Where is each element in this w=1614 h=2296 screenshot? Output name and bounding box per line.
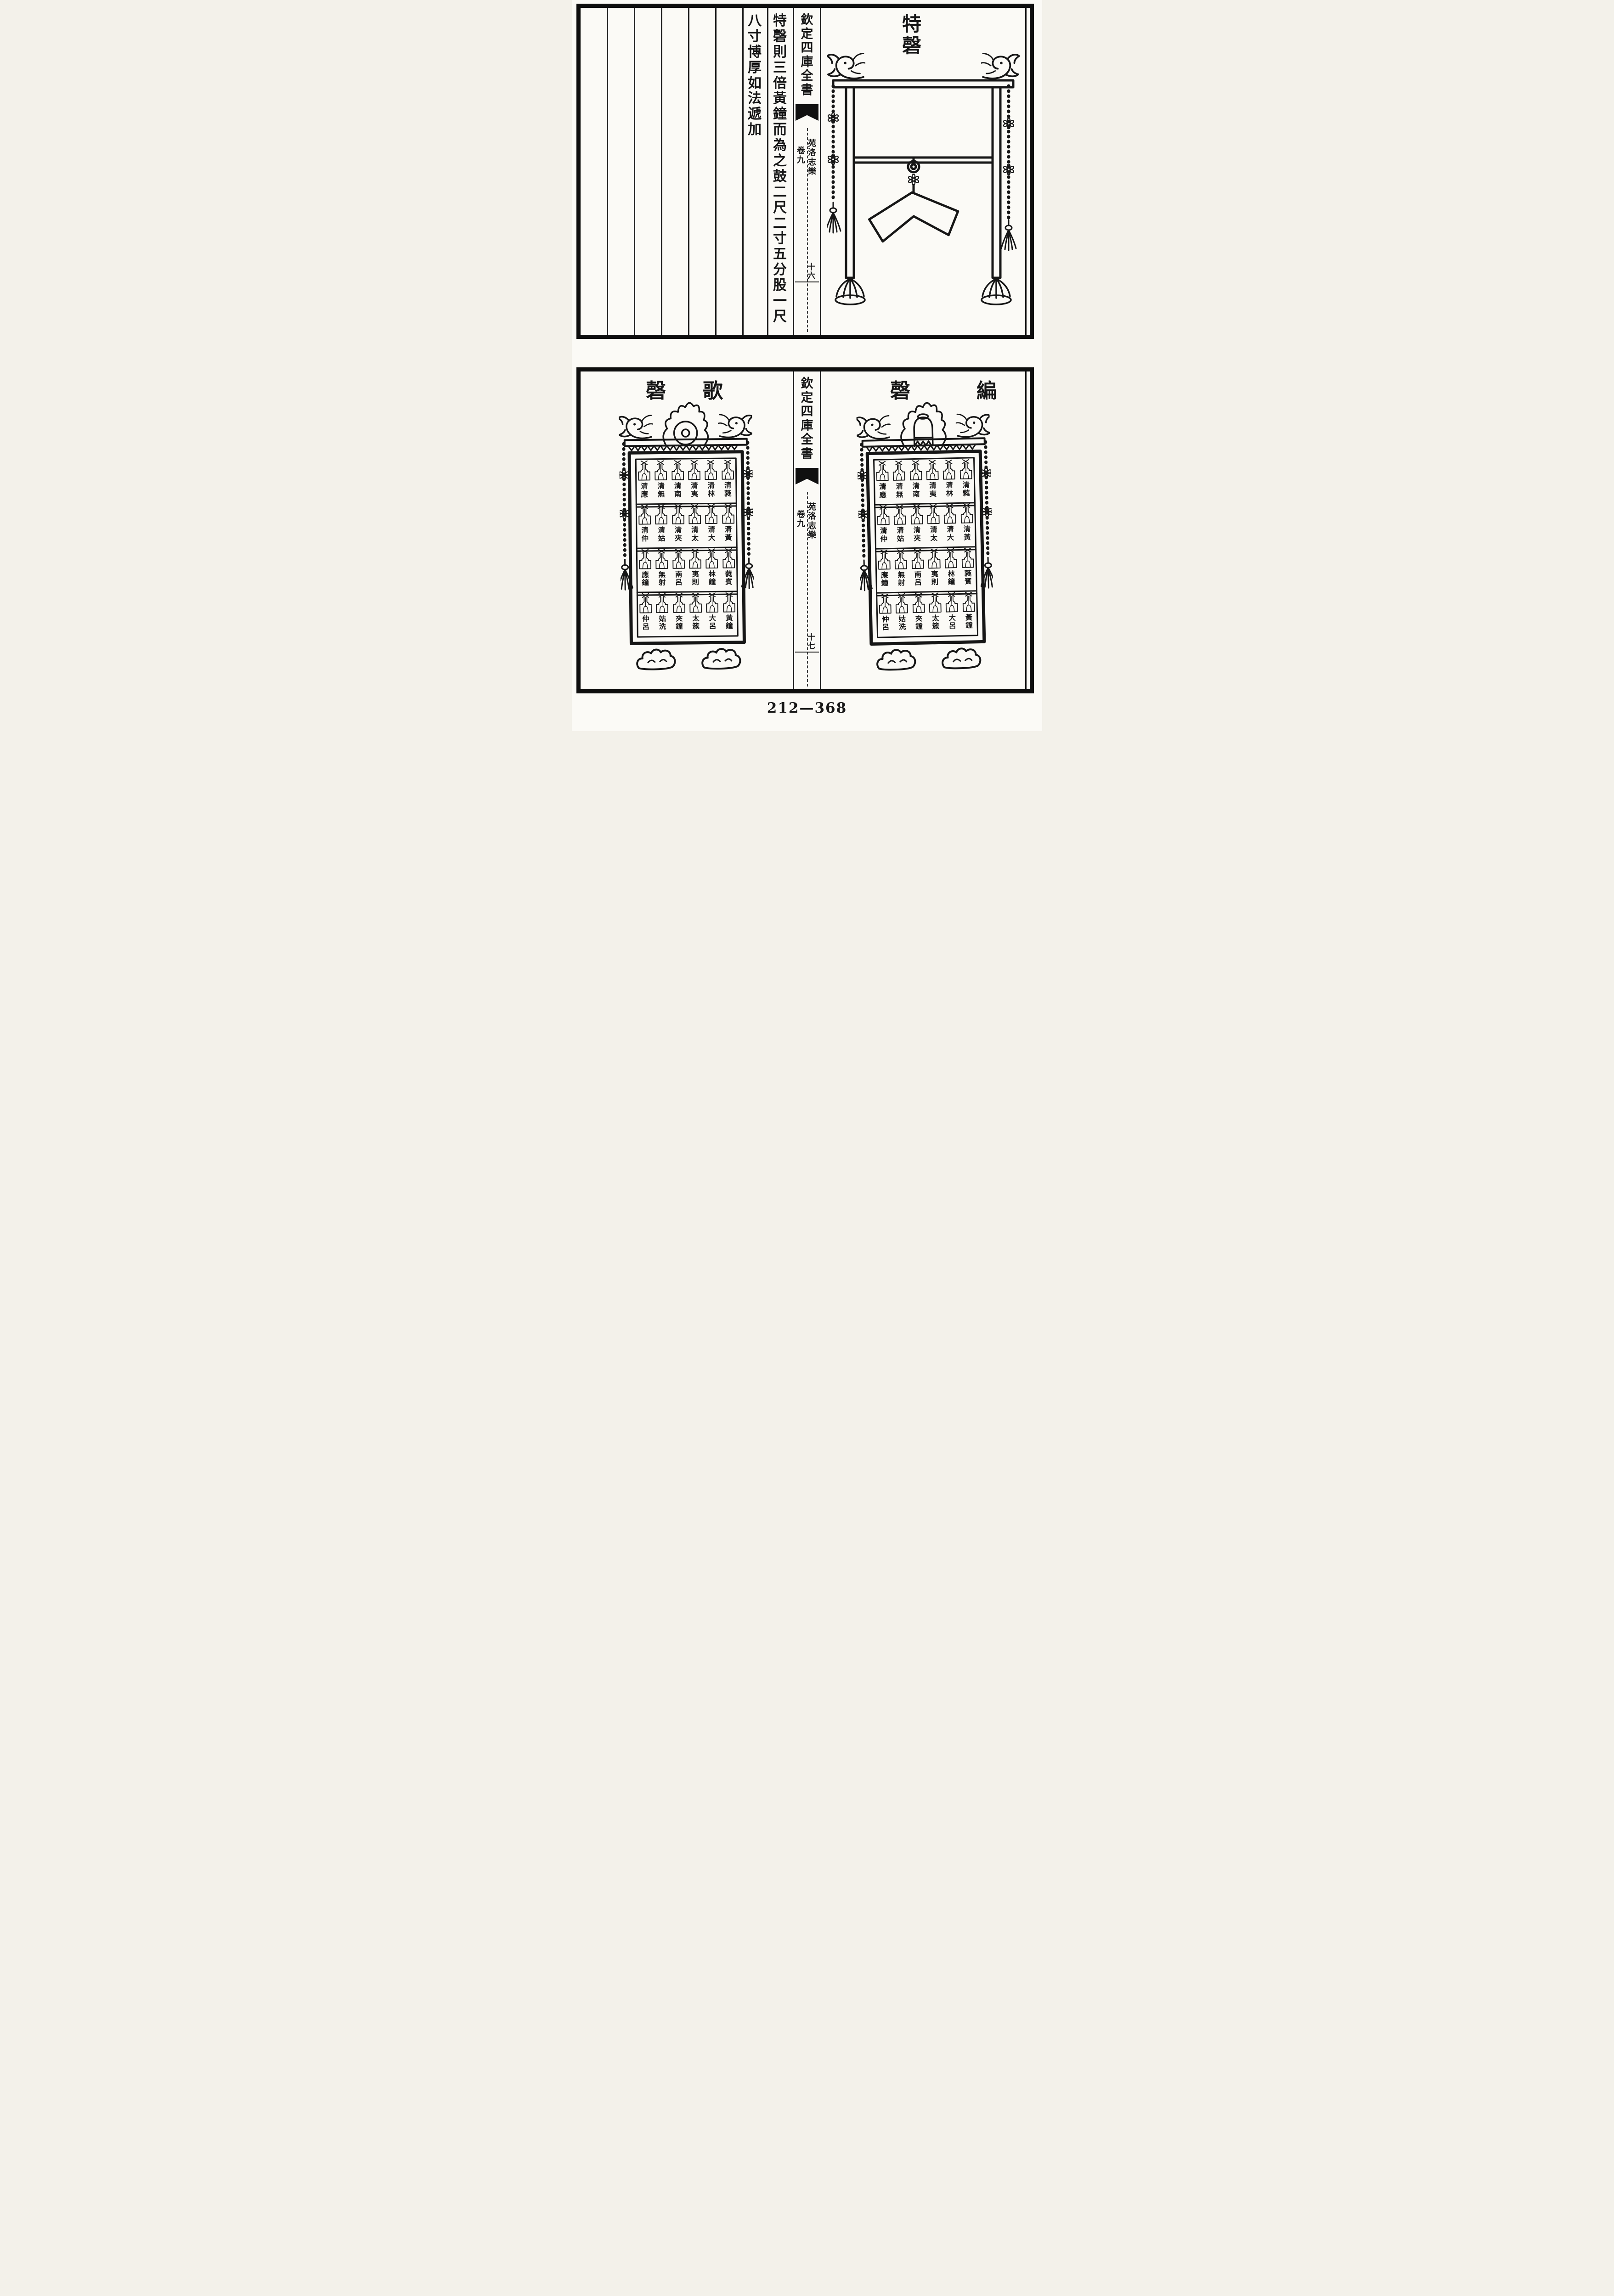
chime-label: 應鐘	[881, 571, 888, 587]
chime: 清應	[874, 461, 892, 505]
chime-label: 蕤賓	[965, 569, 972, 585]
spine-folio: 十六	[807, 263, 815, 281]
catalog-page-number: 212—368	[572, 700, 1042, 716]
chime-label: 太簇	[932, 614, 939, 630]
page-top: 特磬則三倍黃鐘而為之鼓二尺二寸五分股一尺 八寸博厚如法遞加 欽定四庫全書 苑洛志…	[576, 4, 1034, 339]
chime-label: 清大	[947, 526, 954, 542]
chime-label: 應鐘	[642, 571, 649, 587]
cloud-foot-icon	[702, 649, 740, 669]
dragon-head-icon	[981, 53, 1019, 79]
stand-foot-icon	[982, 279, 1011, 304]
stand-foot-icon	[835, 279, 865, 304]
chime-label: 夷則	[692, 570, 699, 586]
chime-stone-icon	[961, 592, 976, 614]
chime-stone-icon	[942, 460, 956, 482]
chime: 夾鐘	[671, 592, 688, 637]
chime-stone-icon	[705, 504, 718, 526]
chime-label: 清夷	[929, 482, 937, 498]
chime-stone-icon	[722, 548, 735, 569]
folio-rule	[795, 652, 819, 653]
chime-stone-icon	[892, 461, 906, 483]
chime-label: 清仲	[880, 527, 887, 543]
chime-stone-icon	[926, 460, 940, 482]
chime-row: 仲呂姑洗夾鐘太簇大呂黃鐘	[637, 592, 738, 637]
chime-label: 清蕤	[963, 481, 970, 497]
chime-stone-icon	[721, 504, 735, 525]
spine-series-title: 欽定四庫全書	[794, 377, 820, 461]
chime: 清仲	[875, 505, 892, 549]
chime-stone-icon	[704, 460, 718, 481]
chime: 清大	[942, 503, 959, 548]
chime-row: 清應清無清南清夷清林清蕤	[636, 459, 736, 505]
chime-stone-icon	[944, 548, 958, 570]
scanned-book-sheet: 特磬則三倍黃鐘而為之鼓二尺二寸五分股一尺 八寸博厚如法遞加 欽定四庫全書 苑洛志…	[572, 0, 1042, 731]
chime-stone-icon	[638, 593, 652, 615]
chime: 仲呂	[637, 593, 654, 637]
spine-book-title: 苑洛志樂	[808, 503, 816, 540]
fishtail-mark	[796, 104, 818, 121]
chime: 清姑	[892, 504, 909, 549]
chime-label: 清黃	[725, 526, 732, 542]
chime-stone-icon	[960, 547, 975, 569]
body-text: 八寸博厚如法遞加	[748, 8, 762, 335]
spine-folio: 十七	[807, 633, 815, 651]
chime: 清黃	[720, 503, 737, 548]
chime-label: 仲呂	[882, 615, 889, 631]
chime: 林鐘	[704, 548, 721, 592]
chime-row: 清仲清姑清夾清太清大清黃	[636, 503, 737, 549]
chime: 姑洗	[654, 592, 671, 637]
bianqing-rack-illustration: 清應清無清南清夷清林清蕤清仲清姑清夾清太清大清黃應鐘無射南呂夷則林鐘蕤賓仲呂姑洗…	[856, 397, 995, 675]
spine-chapter: 卷九	[797, 146, 805, 165]
chime: 清無	[653, 460, 670, 504]
chime: 清南	[669, 460, 686, 504]
chime: 清仲	[636, 504, 653, 549]
chime-label: 大呂	[709, 614, 717, 630]
chime: 姑洗	[893, 592, 911, 637]
chime-label: 清夷	[691, 482, 698, 498]
chime-stone-icon	[672, 593, 686, 614]
chime: 夾鐘	[910, 592, 927, 637]
chime-label: 黃鐘	[726, 614, 733, 630]
chime: 清林	[941, 459, 958, 504]
chime-label: 清蕤	[724, 482, 732, 498]
fishtail-mark	[796, 468, 818, 484]
chime-stone-icon	[671, 504, 685, 526]
chime-label: 清林	[946, 482, 953, 498]
dragon-head-icon	[619, 415, 653, 439]
right-post	[993, 87, 1000, 278]
chime: 太簇	[687, 592, 704, 636]
column-rule	[715, 8, 717, 335]
dragon-head-icon	[718, 414, 753, 438]
chime-stone-icon	[877, 549, 892, 571]
top-beam	[833, 80, 1013, 87]
text-column-2: 八寸博厚如法遞加	[742, 8, 767, 335]
chime-stone-icon	[927, 548, 942, 570]
spine-book-title: 苑洛志樂	[808, 139, 816, 176]
chime-label: 清夾	[914, 526, 921, 542]
dragon-head-icon	[827, 53, 865, 79]
chime-label: 清太	[691, 526, 699, 542]
chime-row: 清仲清姑清夾清太清大清黃	[875, 503, 976, 549]
chime-label: 姑洗	[898, 615, 906, 631]
chime-stone-icon	[688, 504, 701, 526]
chime-stone-icon	[959, 503, 974, 525]
dragon-head-icon	[955, 414, 990, 437]
chime-stone-icon	[894, 549, 908, 571]
chime-stone-icon	[638, 549, 652, 570]
chime-label: 清林	[707, 482, 715, 498]
chime-stone-icon	[688, 592, 702, 614]
chime: 林鐘	[942, 547, 960, 592]
chime-stone-icon	[705, 548, 719, 570]
chime-label: 清仲	[641, 527, 649, 543]
chime-label: 清大	[708, 526, 715, 542]
chime-stone-icon	[911, 593, 926, 615]
chime-stone-icon	[945, 592, 959, 614]
chime-stone-icon	[722, 592, 736, 614]
chime-label: 清夾	[675, 526, 682, 542]
chime: 清蕤	[957, 459, 975, 503]
chime-row: 應鐘無射南呂夷則林鐘蕤賓	[876, 547, 977, 593]
chime: 清黃	[958, 503, 976, 547]
dragon-head-icon	[856, 416, 891, 439]
chime: 南呂	[670, 548, 687, 592]
chime: 應鐘	[876, 549, 893, 593]
chime-label: 林鐘	[709, 570, 716, 586]
tassel-icon	[827, 203, 841, 233]
tassel-icon	[1001, 220, 1016, 250]
chime-stone-icon	[705, 592, 719, 614]
inner-border-line	[1025, 371, 1027, 689]
chime-label: 黃鐘	[965, 614, 973, 630]
chime-stone-icon	[721, 460, 734, 481]
chime: 黃鐘	[960, 591, 977, 636]
chime-stone-icon	[909, 504, 924, 526]
chime-label: 林鐘	[948, 570, 955, 586]
chime-label: 蕤賓	[725, 570, 733, 586]
column-rule	[661, 8, 662, 335]
chime-stone-icon	[655, 549, 669, 570]
geqing-rack-illustration: 清應清無清南清夷清林清蕤清仲清姑清夾清太清大清黃應鐘無射南呂夷則林鐘蕤賓仲呂姑洗…	[619, 397, 755, 674]
crossbar	[854, 158, 993, 163]
chime-label: 仲呂	[642, 615, 649, 631]
chime-stone-icon	[909, 460, 923, 482]
chime-label: 清姑	[897, 527, 904, 543]
text-column-1: 特磬則三倍黃鐘而為之鼓二尺二寸五分股一尺	[767, 8, 793, 335]
chime-stone-icon	[928, 592, 942, 614]
chain-right	[1001, 86, 1016, 250]
column-rule	[607, 8, 608, 335]
chime-grid: 清應清無清南清夷清林清蕤清仲清姑清夾清太清大清黃應鐘無射南呂夷則林鐘蕤賓仲呂姑洗…	[874, 459, 978, 637]
chime-stone-icon	[895, 593, 909, 615]
column-rule	[634, 8, 635, 335]
chime-label: 清太	[930, 526, 937, 542]
flower-rosette-icon	[908, 174, 919, 185]
chime-label: 清無	[658, 482, 665, 498]
chime-label: 夷則	[931, 570, 938, 586]
chime-stone-icon	[910, 549, 925, 571]
chime: 清蕤	[719, 459, 736, 504]
chime-row: 清應清無清南清夷清林清蕤	[874, 459, 975, 505]
chime-row: 仲呂姑洗夾鐘太簇大呂黃鐘	[877, 591, 978, 637]
left-post	[846, 87, 854, 278]
chime: 清太	[686, 504, 703, 548]
chime: 清大	[703, 503, 720, 548]
spine-series-title: 欽定四庫全書	[794, 13, 820, 97]
chime-stone-icon	[893, 505, 907, 527]
chime-stone-icon	[943, 504, 957, 526]
folio-rule	[795, 281, 819, 282]
chime: 清南	[907, 460, 925, 504]
chime: 清無	[891, 460, 908, 505]
chime-grid: 清應清無清南清夷清林清蕤清仲清姑清夾清太清大清黃應鐘無射南呂夷則林鐘蕤賓仲呂姑洗…	[636, 459, 738, 637]
chime-label: 姑洗	[659, 615, 666, 631]
chime-stone-icon	[638, 505, 651, 526]
chime: 無射	[892, 548, 910, 593]
chime-label: 南呂	[914, 571, 922, 587]
cloud-foot-icon	[637, 649, 675, 670]
chime: 清太	[925, 504, 942, 548]
chime-stone-icon	[876, 505, 891, 527]
chime-stone-icon	[672, 549, 685, 570]
body-text: 特磬則三倍黃鐘而為之鼓二尺二寸五分股一尺	[773, 8, 787, 335]
chime: 夷則	[687, 548, 704, 592]
chime-label: 夾鐘	[676, 615, 683, 631]
chime: 黃鐘	[721, 592, 738, 636]
chime-label: 清無	[896, 483, 903, 499]
cloud-foot-icon	[942, 648, 980, 669]
chime-stone-icon	[654, 460, 668, 482]
chime-stone-icon	[637, 461, 651, 482]
chime: 清夷	[924, 459, 942, 504]
chime: 清夷	[686, 460, 703, 504]
chain-left	[827, 86, 841, 233]
chime-label: 清黃	[964, 525, 971, 541]
chime: 太簇	[927, 592, 944, 636]
column-rule	[688, 8, 689, 335]
spine-banxin: 欽定四庫全書 苑洛志樂 卷九 十七	[793, 371, 821, 689]
chime-label: 清應	[641, 483, 648, 499]
chime-label: 夾鐘	[915, 615, 923, 631]
chime: 應鐘	[637, 548, 654, 593]
chime: 清林	[703, 459, 720, 504]
chime: 蕤賓	[720, 547, 737, 592]
spine-chapter: 卷九	[797, 510, 805, 529]
chime-label: 清應	[879, 483, 886, 499]
chime-stone-shape	[868, 189, 960, 242]
chime-label: 南呂	[675, 571, 683, 587]
chime-label: 清南	[913, 482, 920, 498]
chime-stone-icon	[959, 459, 973, 481]
chime-stone-icon	[688, 548, 702, 570]
chime: 蕤賓	[959, 547, 976, 591]
chime-label: 清南	[674, 482, 682, 498]
chime-stone-icon	[655, 505, 668, 526]
cloud-foot-icon	[877, 649, 915, 670]
chime: 無射	[654, 548, 671, 593]
chime-stone-icon	[655, 593, 669, 614]
chime-stone-icon	[671, 460, 684, 482]
chime-label: 清姑	[658, 527, 666, 543]
page-bottom: 磬 歌 磬 編 欽定四庫全書 苑洛志樂 卷九 十七	[576, 367, 1034, 693]
chime-label: 大呂	[948, 614, 956, 630]
chime: 清應	[636, 460, 653, 505]
chime-stone-icon	[878, 593, 892, 615]
chime: 大呂	[704, 592, 721, 636]
chime-label: 無射	[897, 571, 905, 587]
inner-border-line	[1025, 8, 1027, 335]
chime: 仲呂	[877, 593, 894, 637]
chime-stone-icon	[687, 460, 701, 482]
chime: 南呂	[909, 548, 926, 592]
chime: 大呂	[943, 591, 961, 636]
chime-stone-icon	[875, 461, 890, 483]
chime: 清姑	[653, 504, 670, 549]
chime-row: 應鐘無射南呂夷則林鐘蕤賓	[637, 547, 737, 593]
chime: 清夾	[670, 504, 687, 548]
chime-stone-icon	[926, 504, 941, 526]
chime-label: 無射	[659, 571, 666, 587]
spine-banxin: 欽定四庫全書 苑洛志樂 卷九 十六	[793, 8, 821, 335]
chime: 清夾	[908, 504, 926, 548]
chime: 夷則	[926, 548, 943, 592]
chime-label: 太簇	[692, 614, 700, 630]
teqing-stand-illustration	[827, 40, 1020, 334]
